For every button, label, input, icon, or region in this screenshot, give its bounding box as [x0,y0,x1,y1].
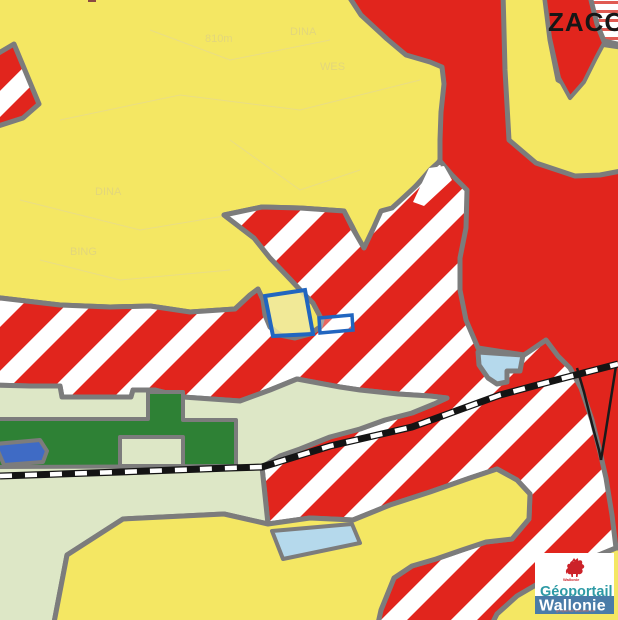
svg-text:geoportail wallonie be: geoportail wallonie be [556,608,595,613]
svg-text:ZACC: ZACC [548,7,618,37]
svg-text:DINA: DINA [95,186,122,198]
svg-text:810m: 810m [205,33,233,45]
svg-text:BING: BING [70,246,97,258]
svg-text:DINA: DINA [290,26,317,38]
svg-text:WES: WES [320,61,345,73]
svg-text:Wallonie: Wallonie [563,577,580,582]
